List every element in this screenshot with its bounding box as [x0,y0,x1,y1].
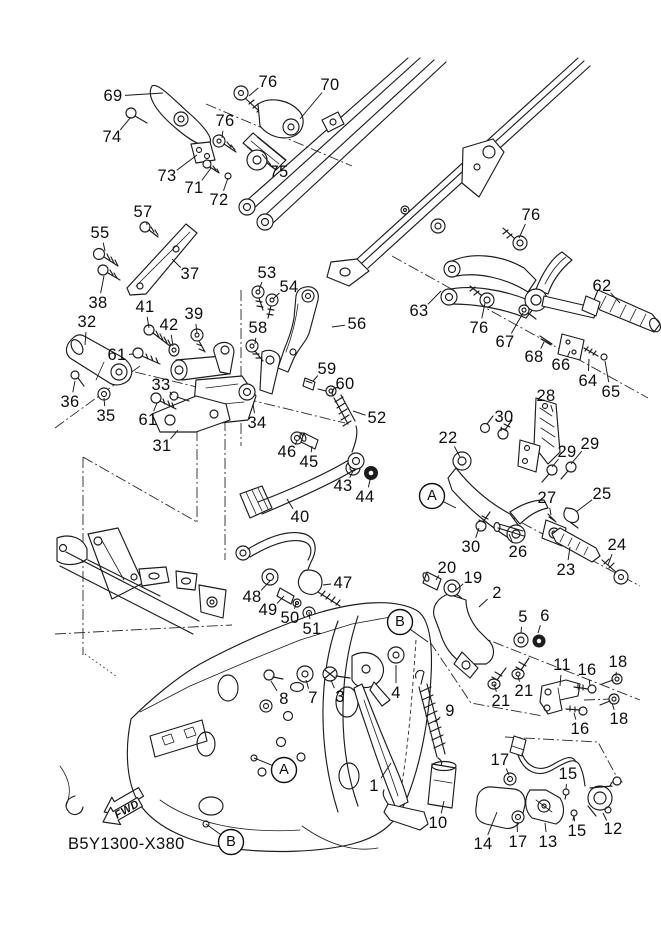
part-callout-44: 44 [356,488,375,506]
part-callout-16: 16 [578,661,597,679]
part-callout-40: 40 [291,508,310,526]
part-callout-14: 14 [474,835,493,853]
part-callout-68: 68 [525,348,544,366]
part-callout-60: 60 [336,375,355,393]
part-callout-33: 33 [152,376,171,394]
part-callout-26: 26 [509,543,528,561]
part-callout-58: 58 [249,319,268,337]
part-callout-11: 11 [553,656,571,674]
part-callout-51: 51 [303,620,322,638]
part-callout-76: 76 [216,112,235,130]
part-callout-24: 24 [608,536,627,554]
part-callout-34: 34 [248,414,267,432]
part-callout-21: 21 [492,692,511,710]
part-callout-53: 53 [258,264,277,282]
part-callout-23: 23 [557,561,576,579]
part-callout-50: 50 [281,609,300,627]
part-callout-57: 57 [134,203,153,221]
part-callout-64: 64 [579,372,598,390]
part-callout-5: 5 [518,608,527,626]
part-callout-67: 67 [496,333,515,351]
callout-leader-5 [521,627,522,633]
part-callout-20: 20 [438,559,457,577]
part-callout-28: 28 [537,387,556,405]
part-callout-17: 17 [491,751,510,769]
part-callout-7: 7 [308,689,317,707]
part-callout-76: 76 [522,206,541,224]
part-callout-41: 41 [136,298,155,316]
callout-leader-57 [147,222,148,225]
part-callout-18: 18 [609,653,628,671]
part-callout-30: 30 [495,408,514,426]
callout-leader-64 [589,359,590,371]
diagram-canvas: 6976707476737172757657553837535462633241… [0,0,661,935]
part-callout-32: 32 [78,313,97,331]
part-callout-69: 69 [104,87,123,105]
part-callout-45: 45 [300,453,319,471]
part-callout-18: 18 [610,710,629,728]
part-callout-52: 52 [368,409,387,427]
part-callout-54: 54 [280,278,299,296]
drawing-code: B5Y1300-X380 [68,835,185,853]
svg-text:A: A [279,762,289,778]
part-callout-31: 31 [153,437,172,455]
part-callout-47: 47 [334,574,353,592]
part-callout-55: 55 [91,224,110,242]
part-callout-35: 35 [97,407,116,425]
part-callout-12: 12 [604,820,623,838]
part-callout-29: 29 [581,435,600,453]
part-callout-9: 9 [445,702,454,720]
part-callout-25: 25 [593,485,612,503]
part-callout-4: 4 [391,684,400,702]
part-callout-27: 27 [538,489,557,507]
part-callout-1: 1 [369,777,378,795]
part-callout-19: 19 [464,569,483,587]
part-callout-13: 13 [539,833,558,851]
svg-text:B: B [395,614,405,630]
part-callout-63: 63 [410,302,429,320]
part-callout-72: 72 [210,191,229,209]
part-callout-70: 70 [321,76,340,94]
svg-text:B: B [226,834,236,850]
part-callout-49: 49 [259,601,278,619]
part-callout-16: 16 [571,720,590,738]
callout-leader-30 [501,427,502,431]
part-callout-56: 56 [348,315,367,333]
part-callout-61: 61 [139,411,158,429]
part-callout-37: 37 [181,265,200,283]
part-callout-6: 6 [540,607,549,625]
part-callout-74: 74 [103,128,122,146]
part-callout-43: 43 [334,477,353,495]
part-callout-15: 15 [559,765,578,783]
part-callout-17: 17 [509,833,528,851]
part-callout-21: 21 [515,682,534,700]
part-callout-62: 62 [593,277,612,295]
part-callout-42: 42 [160,316,179,334]
part-callout-22: 22 [439,429,458,447]
part-callout-73: 73 [158,167,177,185]
part-callout-66: 66 [552,356,571,374]
part-callout-8: 8 [279,690,288,708]
part-callout-29: 29 [558,443,577,461]
svg-text:A: A [427,488,437,504]
part-callout-36: 36 [61,393,80,411]
part-callout-59: 59 [318,360,337,378]
part-callout-75: 75 [270,163,289,181]
part-callout-3: 3 [335,688,344,706]
part-callout-15: 15 [568,822,587,840]
part-callout-39: 39 [185,305,204,323]
part-callout-61: 61 [108,346,127,364]
part-callout-38: 38 [89,294,108,312]
part-callout-65: 65 [602,383,621,401]
callout-leader-15 [574,816,575,821]
part-callout-46: 46 [278,443,297,461]
parts-diagram-page: 6976707476737172757657553837535462633241… [0,0,661,935]
part-callout-10: 10 [429,814,448,832]
part-callout-71: 71 [185,179,204,197]
part-callout-30: 30 [462,538,481,556]
part-callout-76: 76 [259,73,278,91]
part-callout-2: 2 [492,584,501,602]
part-callout-76: 76 [470,319,489,337]
